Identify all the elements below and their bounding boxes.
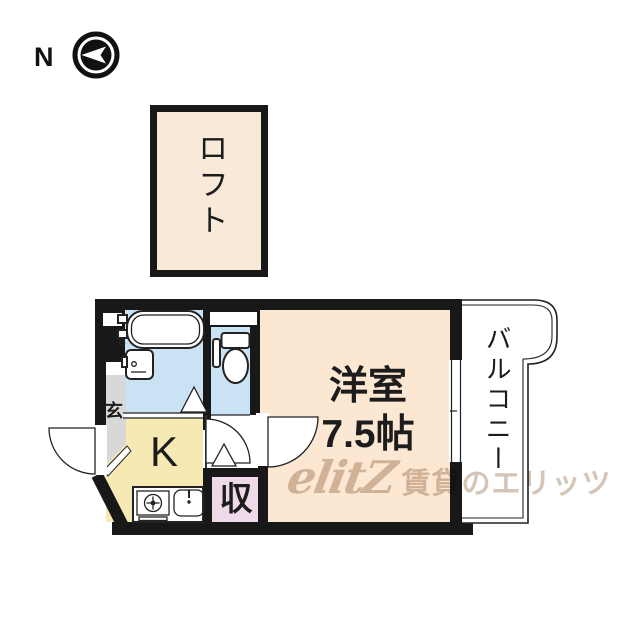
wall-bottom <box>112 522 473 535</box>
floorplan-drawing <box>0 0 640 640</box>
watermark-logo: elitZ <box>283 451 399 504</box>
wall-right-upper <box>450 299 462 360</box>
floorplan-canvas: ロフト 洋室 7.5帖 K 収 玄 バルコニー N elitZ 賃貸のエリッツ <box>0 0 640 640</box>
north-compass: N <box>28 26 138 90</box>
entrance-door <box>49 425 107 475</box>
kitchen-counter <box>133 487 204 522</box>
watermark-text: 賃貸のエリッツ <box>401 460 611 502</box>
toilet-window-shelf <box>209 311 258 326</box>
watermark: elitZ 賃貸のエリッツ <box>288 451 611 504</box>
storage-label: 収 <box>214 481 258 518</box>
north-label: N <box>34 42 54 73</box>
bathtub-icon <box>118 311 204 348</box>
wall-top <box>95 299 462 310</box>
entrance-door-swing <box>49 428 95 474</box>
western-room-label: 洋室 <box>262 365 474 409</box>
wall-storage-top <box>203 468 268 477</box>
loft-label: ロフト <box>192 132 227 240</box>
entrance-label: 玄 <box>105 401 123 421</box>
bath-sink-icon <box>122 350 153 379</box>
kitchen-label: K <box>134 428 194 475</box>
north-arrow-icon <box>68 26 128 86</box>
